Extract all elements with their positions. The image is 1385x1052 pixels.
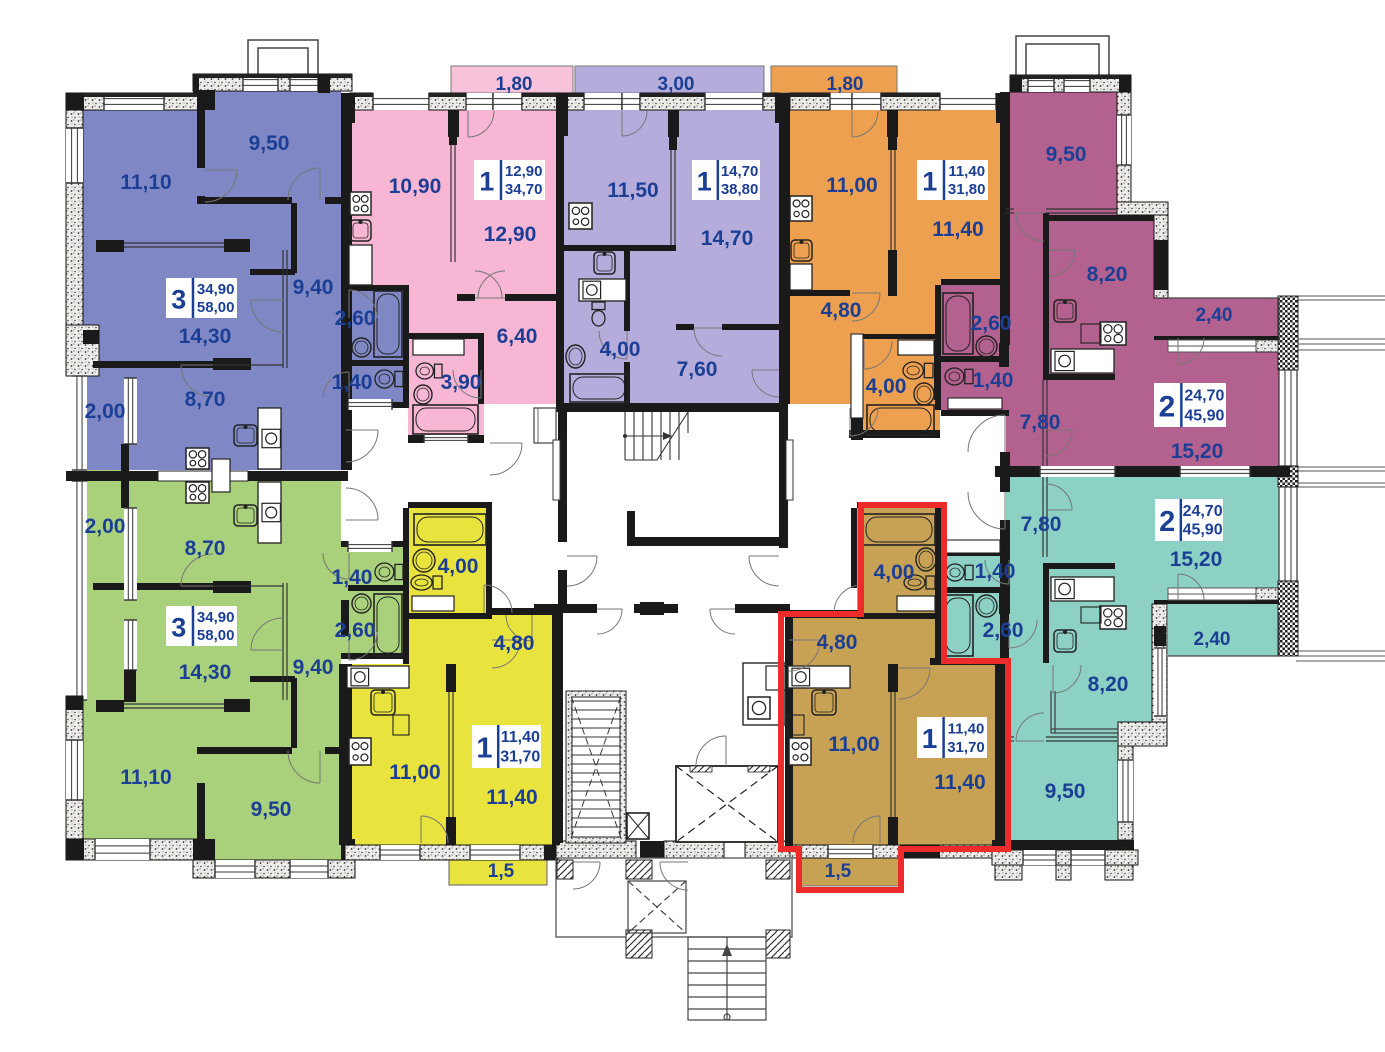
svg-text:31,80: 31,80 <box>948 181 986 198</box>
svg-text:1,40: 1,40 <box>332 566 373 589</box>
svg-text:9,50: 9,50 <box>251 798 292 821</box>
svg-text:34,90: 34,90 <box>197 609 235 626</box>
svg-text:10,90: 10,90 <box>389 175 442 198</box>
svg-text:11,40: 11,40 <box>948 720 985 737</box>
svg-text:31,70: 31,70 <box>947 739 985 756</box>
svg-text:2,40: 2,40 <box>1196 305 1233 326</box>
svg-text:15,20: 15,20 <box>1171 440 1224 463</box>
svg-text:4,00: 4,00 <box>874 561 915 584</box>
svg-text:45,90: 45,90 <box>1184 407 1224 424</box>
svg-text:12,90: 12,90 <box>505 163 543 180</box>
svg-text:6,40: 6,40 <box>497 325 538 348</box>
svg-text:58,00: 58,00 <box>197 627 235 644</box>
svg-text:1,5: 1,5 <box>825 861 852 882</box>
svg-text:4,00: 4,00 <box>866 375 907 398</box>
svg-text:2: 2 <box>1159 506 1175 538</box>
svg-text:14,30: 14,30 <box>179 661 232 684</box>
svg-text:38,80: 38,80 <box>721 181 759 198</box>
svg-text:8,70: 8,70 <box>185 537 226 560</box>
svg-text:4,80: 4,80 <box>817 631 858 654</box>
svg-text:9,50: 9,50 <box>249 132 290 155</box>
svg-text:12,90: 12,90 <box>484 223 537 246</box>
svg-text:11,10: 11,10 <box>120 766 171 789</box>
svg-text:9,50: 9,50 <box>1046 143 1087 166</box>
svg-text:11,40: 11,40 <box>486 786 537 809</box>
svg-text:4,00: 4,00 <box>600 338 641 361</box>
svg-text:14,30: 14,30 <box>179 325 232 348</box>
svg-text:1,80: 1,80 <box>496 74 533 95</box>
svg-text:2,60: 2,60 <box>983 619 1024 642</box>
svg-text:15,20: 15,20 <box>1170 548 1223 571</box>
svg-text:11,50: 11,50 <box>607 179 658 202</box>
svg-text:11,10: 11,10 <box>120 171 171 194</box>
svg-text:2,00: 2,00 <box>85 400 126 423</box>
svg-text:8,70: 8,70 <box>185 388 226 411</box>
svg-text:3,00: 3,00 <box>658 74 695 95</box>
svg-text:3,90: 3,90 <box>441 371 482 394</box>
svg-text:11,40: 11,40 <box>501 729 540 746</box>
svg-text:34,70: 34,70 <box>505 181 543 198</box>
svg-text:3: 3 <box>171 284 186 314</box>
svg-text:9,40: 9,40 <box>293 276 334 299</box>
svg-text:14,70: 14,70 <box>701 227 754 250</box>
svg-text:4,00: 4,00 <box>438 555 479 578</box>
svg-text:2,40: 2,40 <box>1194 629 1231 650</box>
svg-text:1: 1 <box>479 166 494 196</box>
svg-text:11,00: 11,00 <box>389 761 440 784</box>
svg-text:1,5: 1,5 <box>488 861 515 882</box>
svg-text:1,80: 1,80 <box>827 74 864 95</box>
svg-text:11,00: 11,00 <box>828 733 879 756</box>
svg-text:58,00: 58,00 <box>197 299 235 316</box>
svg-text:11,40: 11,40 <box>934 771 985 794</box>
svg-text:31,70: 31,70 <box>500 749 540 766</box>
svg-text:7,80: 7,80 <box>1021 513 1062 536</box>
svg-text:34,90: 34,90 <box>197 281 235 298</box>
svg-text:1,40: 1,40 <box>332 371 373 394</box>
svg-text:11,40: 11,40 <box>932 218 983 241</box>
svg-text:1: 1 <box>476 733 492 765</box>
svg-text:4,80: 4,80 <box>821 299 862 322</box>
svg-text:11,00: 11,00 <box>826 174 877 197</box>
svg-text:4,80: 4,80 <box>494 632 535 655</box>
svg-text:1: 1 <box>922 166 937 196</box>
svg-text:8,20: 8,20 <box>1087 263 1128 286</box>
svg-text:8,20: 8,20 <box>1088 673 1129 696</box>
svg-text:2,60: 2,60 <box>335 619 376 642</box>
svg-text:2: 2 <box>1159 390 1176 423</box>
svg-text:1,40: 1,40 <box>975 560 1016 583</box>
svg-text:2,00: 2,00 <box>85 515 126 538</box>
svg-text:9,50: 9,50 <box>1045 780 1086 803</box>
svg-text:2,60: 2,60 <box>971 312 1012 335</box>
svg-text:1: 1 <box>922 723 938 754</box>
svg-text:45,90: 45,90 <box>1183 522 1223 539</box>
svg-text:1: 1 <box>697 166 712 196</box>
svg-text:11,40: 11,40 <box>948 163 985 180</box>
svg-text:24,70: 24,70 <box>1183 503 1223 520</box>
svg-text:3: 3 <box>171 612 186 642</box>
svg-text:9,40: 9,40 <box>293 656 334 679</box>
svg-text:7,60: 7,60 <box>677 358 718 381</box>
svg-text:1,40: 1,40 <box>973 369 1014 392</box>
svg-text:14,70: 14,70 <box>721 163 759 180</box>
svg-text:7,80: 7,80 <box>1020 411 1061 434</box>
svg-text:24,70: 24,70 <box>1184 388 1224 405</box>
svg-text:2,60: 2,60 <box>335 307 376 330</box>
